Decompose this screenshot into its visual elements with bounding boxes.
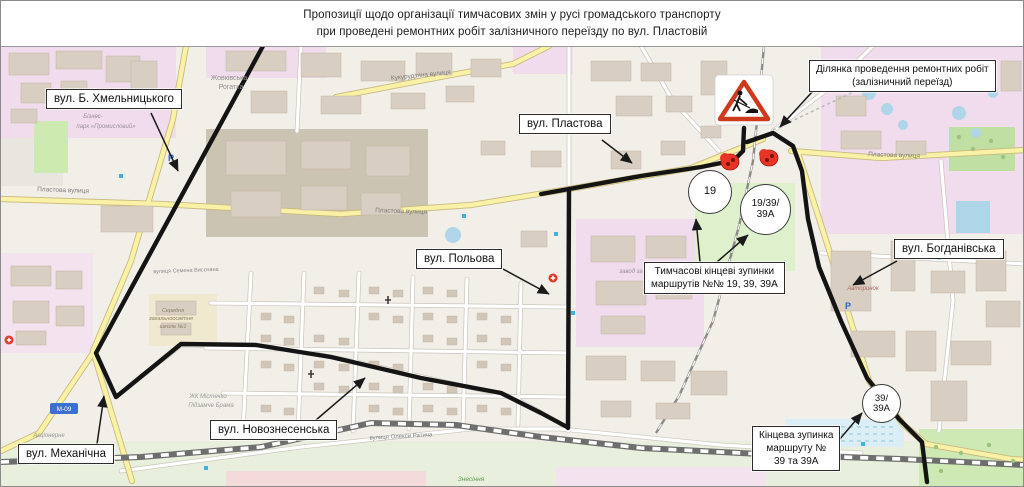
callout-text: вул. Богданівська [902,243,996,255]
building [13,301,49,323]
callout-text: маршрутів №№ 19, 39, 39А [651,278,778,291]
building [641,361,675,381]
building [501,408,511,415]
map-label: Знесіння [458,475,485,483]
map-label: вулиця Олекси Ратича [369,432,433,441]
building [261,361,271,368]
annotation-arrow [503,269,549,294]
map-label: Жовківська [211,74,248,82]
building [501,316,511,323]
building [591,61,631,81]
building [314,287,324,294]
callout-text: вул. Механічна [26,448,106,460]
building [261,335,271,342]
callout-text: вул. Польова [424,253,494,265]
badge-text: 39/ [875,394,888,404]
callout-final-stop: Кінцева зупинка маршруту № 39 та 39А [752,426,840,471]
building [616,96,652,116]
route-badge-19-39-39a: 19/39/ 39А [740,184,791,235]
bus-stop-icon [204,466,208,470]
building [477,335,487,342]
map-zone [226,471,426,487]
building [284,338,294,345]
map-zone [34,121,68,173]
building [447,338,457,345]
map-zone [556,467,766,487]
tree [1001,155,1005,159]
building [656,403,690,419]
building [447,386,457,393]
callout-text: (залізничний переїзд) [816,76,989,89]
callout-text: вул. Б. Хмельницького [54,93,174,105]
building [691,371,727,395]
building [314,383,324,390]
map-zone [1,441,1024,487]
building [101,206,153,232]
building [1001,61,1021,91]
building [369,287,379,294]
map-label: парк «Промисловий» [76,123,136,130]
tree [959,451,963,455]
callout-street-bohdanivska: вул. Богданівська [894,239,1004,259]
badge-text: 39А [873,404,890,414]
map-zone [956,201,990,233]
building [423,313,433,320]
map-label: Середня [162,308,184,314]
building [56,306,84,326]
bus-stop-icon [119,174,123,178]
building [477,361,487,368]
building [423,383,433,390]
building [314,335,324,342]
stop-marker-dot [770,154,774,158]
badge-text: 39А [757,210,775,221]
pond [881,103,893,115]
building [423,287,433,294]
building [601,401,631,417]
building [601,316,645,334]
building [986,301,1020,327]
building [339,338,349,345]
tree [934,445,938,449]
map-label: М-09 [57,406,72,413]
tree [989,139,993,143]
map-label: Бізнес- [83,114,103,120]
building [471,59,501,77]
callout-text: маршруту № [759,442,833,455]
building [447,408,457,415]
building [481,141,505,155]
building [9,53,49,75]
building [501,338,511,345]
building [531,151,561,167]
callout-text: вул. Новознесенська [218,424,329,436]
callout-street-novoznesenska: вул. Новознесенська [210,420,337,440]
parking-icon: P [845,301,851,311]
annotation-arrow [97,396,104,444]
map-label: Пластова вулиця [37,186,89,195]
map-label: Авторинок [846,286,880,292]
pond [445,227,461,243]
callout-repair-area: Ділянка проведення ремонтних робіт (залі… [809,60,996,92]
stop-marker-dot [765,158,769,162]
map-label: вулиця Семена Височана [153,267,219,275]
building [841,131,881,149]
building [393,316,403,323]
building [321,96,361,114]
map-label: школа №1 [160,324,187,330]
building [586,356,626,380]
stop-marker-dot [726,162,730,166]
building [477,313,487,320]
building [423,335,433,342]
title-line-1: Пропозиції щодо організації тимчасових з… [303,7,720,24]
building [231,191,281,217]
badge-text: 19/39/ [752,199,780,210]
building [284,316,294,323]
route-badge-39-39a: 39/ 39А [862,384,901,423]
roadworks-sign-icon [715,75,773,125]
building [131,61,157,91]
callout-street-khmelnytskoho: вул. Б. Хмельницького [46,89,182,109]
callout-street-mekhanichna: вул. Механічна [18,444,114,464]
tree [987,443,991,447]
building [339,386,349,393]
street [409,277,413,429]
callout-text: Тимчасові кінцеві зупинки [651,265,778,278]
callout-text: Кінцева зупинка [759,429,833,442]
building [641,63,671,81]
building [447,316,457,323]
street [463,279,467,427]
bus-stop-icon [462,214,466,218]
church-cross-icon [308,370,314,378]
tree [939,469,943,473]
building [447,290,457,297]
callout-text: 39 та 39А [759,455,833,468]
pond [971,128,981,138]
building [56,271,82,289]
building [446,86,474,102]
bus-stop-icon [861,442,865,446]
map-label: ЖК Містечко [188,394,227,400]
stop-marker-dot [731,158,735,162]
map-label: завод за [618,269,643,275]
title-line-2: при проведені ремонтних робіт залізнично… [317,24,708,41]
building [366,146,410,176]
pond [898,120,908,130]
building [284,364,294,371]
building [701,126,721,138]
building [423,405,433,412]
map-label: Рогатка [219,84,244,91]
tree [971,147,975,151]
building [931,271,965,293]
building [391,93,425,109]
building [596,281,646,305]
building [261,405,271,412]
building [836,96,866,116]
building [646,236,686,258]
building [521,231,547,247]
tree [1011,459,1015,463]
building [931,381,967,421]
building [501,364,511,371]
building [314,361,324,368]
building [393,408,403,415]
building [369,383,379,390]
street [243,273,251,431]
callout-street-polova: вул. Польова [416,249,502,269]
building [11,266,51,286]
transport-change-proposal-map: PPЖовківськаРогаткаКукурудзяна вулицяПла… [0,0,1024,487]
annotation-arrow [780,91,813,127]
building [339,364,349,371]
tree [957,135,961,139]
callout-text: вул. Пластова [527,118,603,130]
map-label: Підзамче Брама [188,403,234,409]
building [301,141,351,169]
map-label: загальноосвітня [148,316,193,322]
building [369,313,379,320]
building [261,313,271,320]
building [284,408,294,415]
callout-text: Ділянка проведення ремонтних робіт [816,63,989,76]
building [251,91,287,113]
building [477,405,487,412]
building [661,141,685,155]
pond [952,106,966,120]
building [339,290,349,297]
route-badge-19: 19 [688,170,732,214]
callout-temporary-stops: Тимчасові кінцеві зупинки маршрутів №№ 1… [644,262,785,294]
building [16,331,46,345]
title-bar: Пропозиції щодо організації тимчасових з… [1,1,1023,47]
building [393,386,403,393]
bus-route-line [568,189,569,428]
building [591,236,635,262]
callout-street-plastova: вул. Пластова [519,114,611,134]
bus-stop-icon [571,311,575,315]
building [301,53,341,77]
building [393,290,403,297]
building [369,405,379,412]
stop-marker-icon [759,149,769,159]
badge-text: 19 [704,186,716,198]
building [611,151,641,169]
stop-marker-icon [720,153,730,163]
building [951,341,991,365]
building [666,96,692,112]
building [11,109,37,123]
building [226,141,286,175]
building [56,51,102,69]
bus-stop-icon [554,232,558,236]
building [301,186,347,210]
map-label: Акціонерне [32,433,65,439]
building [906,331,936,371]
street [223,393,566,397]
